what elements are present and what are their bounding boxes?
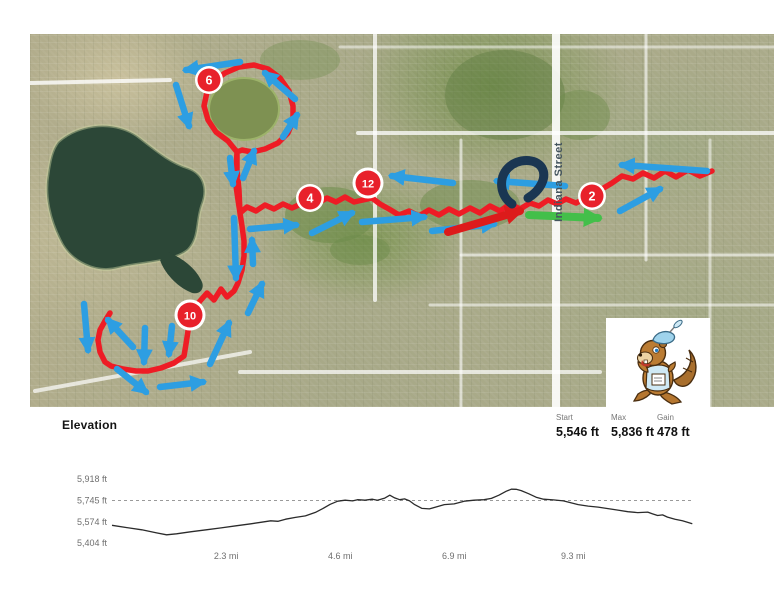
mile-marker-2: 2 — [578, 182, 606, 210]
stat-start-label: Start — [556, 413, 599, 422]
mascot-eye — [655, 349, 658, 352]
svg-text:6: 6 — [206, 73, 213, 87]
mile-marker-6: 6 — [195, 66, 223, 94]
mile-marker-10: 10 — [175, 300, 206, 331]
street-label: Indiana Street — [553, 142, 565, 222]
lake — [47, 126, 205, 294]
direction-arrow-icon — [230, 158, 233, 184]
direction-arrow-icon — [250, 225, 296, 229]
stat-max: Max 5,836 ft — [611, 413, 654, 439]
y-tick-label: 5,404 ft — [77, 538, 108, 548]
direction-arrow-icon — [252, 240, 253, 264]
direction-arrow-icon — [392, 176, 453, 183]
svg-text:12: 12 — [362, 178, 374, 190]
svg-text:4: 4 — [307, 191, 314, 205]
direction-arrow-icon — [243, 151, 254, 178]
x-tick-label: 4.6 mi — [328, 551, 353, 561]
page: Indiana Street 2461012 5,918 ft5,745 ft5… — [0, 0, 776, 600]
mascot-arm — [668, 362, 675, 372]
x-axis-ticks: 2.3 mi4.6 mi6.9 mi9.3 mi — [214, 551, 586, 561]
x-tick-label: 9.3 mi — [561, 551, 586, 561]
mile-marker-4: 4 — [296, 184, 324, 212]
mascot-tail — [674, 350, 696, 386]
direction-arrow-icon — [108, 320, 133, 347]
x-tick-label: 6.9 mi — [442, 551, 467, 561]
direction-arrow-icon — [169, 326, 172, 354]
mascot-bib — [652, 374, 665, 385]
direction-arrow-icon — [84, 304, 88, 350]
stat-start-value: 5,546 ft — [556, 425, 599, 439]
stat-gain: Gain 478 ft — [657, 413, 690, 439]
y-axis-ticks: 5,918 ft5,745 ft5,574 ft5,404 ft — [77, 474, 108, 548]
direction-arrow-icon — [144, 328, 145, 362]
stat-max-value: 5,836 ft — [611, 425, 654, 439]
elevation-section-label: Elevation — [62, 418, 117, 432]
mascot-cap — [653, 332, 675, 344]
direction-arrow-icon — [176, 85, 189, 126]
direction-arrow-icon — [234, 218, 236, 278]
mascot-leg — [634, 390, 650, 401]
y-tick-label: 5,745 ft — [77, 496, 108, 506]
svg-text:2: 2 — [589, 189, 596, 203]
stat-gain-label: Gain — [657, 413, 690, 422]
direction-arrow-icon — [160, 382, 203, 387]
stat-start: Start 5,546 ft — [556, 413, 599, 439]
y-tick-label: 5,918 ft — [77, 474, 108, 484]
elevation-chart: 5,918 ft5,745 ft5,574 ft5,404 ft 2.3 mi4… — [77, 474, 692, 561]
mile-marker-12: 12 — [353, 168, 384, 199]
direction-arrow-icon — [622, 165, 707, 171]
y-tick-label: 5,574 ft — [77, 517, 108, 527]
map-overlay: Indiana Street 2461012 5,918 ft5,745 ft5… — [0, 0, 776, 600]
direction-arrow-icon — [620, 189, 660, 211]
x-tick-label: 2.3 mi — [214, 551, 239, 561]
mascot-nose — [639, 353, 642, 356]
mascot-illustration — [606, 318, 710, 410]
svg-text:10: 10 — [184, 310, 196, 322]
elevation-line — [112, 489, 692, 535]
stat-max-label: Max — [611, 413, 654, 422]
stat-gain-value: 478 ft — [657, 425, 690, 439]
mascot-box — [606, 318, 710, 410]
direction-arrow-icon — [248, 284, 262, 313]
